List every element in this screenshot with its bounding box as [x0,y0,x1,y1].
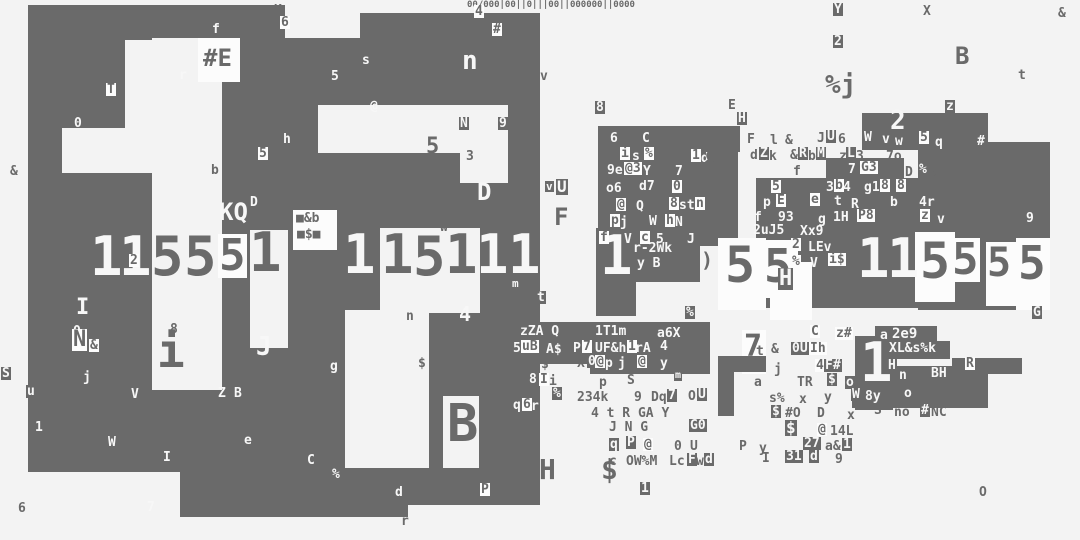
glyph: y [824,391,832,404]
glyph: y B [637,257,660,270]
glyph: $ [418,357,426,370]
glyph: 1H [833,211,849,224]
glyph: o [904,387,912,400]
glyph: U [826,130,836,143]
glyph: r [179,69,187,82]
glyph: H [539,456,556,484]
screen: 00/000|00||0|||00||000000||0000K6f#Er5T0… [0,0,1080,540]
glyph: ■&b [296,212,319,225]
glyph: Y [833,3,843,16]
glyph: 1 [445,228,478,282]
glyph: p [605,357,613,370]
glyph: 0 [672,180,682,193]
glyph: F [747,133,755,146]
glyph: 5 [513,342,521,355]
glyph: 2 [833,35,843,48]
glyph: 5 [656,233,664,246]
glyph: q [609,438,619,451]
glyph: z [920,209,930,222]
glyph: % [685,306,695,319]
glyph: J [687,233,695,246]
glyph: j [82,371,92,384]
glyph: % [791,255,801,268]
glyph: 4 [459,304,471,324]
glyph: z [945,100,955,113]
glyph: r [401,515,409,528]
glyph: % [644,147,654,160]
glyph: Lc [669,455,685,468]
glyph: 8 [896,179,906,192]
glyph: G [1032,306,1042,319]
glyph: & [703,149,721,179]
glyph: C [642,132,650,145]
glyph: B [234,387,242,400]
glyph: 8 [528,373,538,386]
glyph: p [610,214,620,227]
glyph: w [696,455,704,468]
glyph: I [163,451,171,464]
glyph: W [649,215,657,228]
glyph: TR [797,376,813,389]
glyph: 4 [474,5,484,18]
glyph: u [26,385,36,398]
glyph: $ [771,405,781,418]
glyph: 9e [607,164,623,177]
glyph: w [895,135,903,148]
glyph: d7 [639,180,655,193]
glyph: Xx9 [800,225,823,238]
glyph: x [799,393,807,406]
glyph: & [10,165,18,178]
glyph: P [573,342,581,355]
glyph: @3 [624,162,642,175]
glyph: 8 [669,197,679,210]
glyph: Ih [809,342,827,355]
glyph: W [863,131,873,144]
glyph: E [776,194,786,207]
glyph: V [810,257,818,270]
block-rect [718,126,740,152]
glyph: 7 [848,163,856,176]
glyph: x [847,409,855,422]
glyph: XL&s%k [889,342,936,355]
glyph: 6 [18,502,26,515]
glyph: j [774,363,782,376]
glyph: b [211,164,219,177]
glyph: r-2Wk [633,242,672,255]
glyph: 5 [919,131,929,144]
glyph: 6 [280,16,290,29]
glyph: uB [521,340,539,353]
glyph: H [737,112,747,125]
glyph: S [1,367,11,380]
glyph: d [704,453,714,466]
glyph: $ [785,420,797,436]
glyph: E [728,99,736,112]
glyph: N [72,329,87,351]
glyph: 1 [857,232,890,286]
glyph: n [899,369,907,382]
glyph: 3 [466,150,474,163]
glyph: G3 [860,161,878,174]
block-rect [28,5,285,40]
glyph: d [809,450,819,463]
glyph: @ [370,100,378,113]
glyph: 7o [886,150,902,163]
glyph: 4 t R GA Y [591,407,669,420]
glyph: 1 [842,438,852,451]
glyph: 1 [476,228,509,282]
glyph: 5 [258,147,268,160]
block-rect [400,472,540,505]
glyph: k [769,150,777,163]
glyph: v [545,181,554,192]
glyph: zZA Q [520,325,559,338]
block-rect [180,472,408,517]
glyph: & [790,149,798,162]
glyph: a [754,376,762,389]
glyph: 7 [582,340,592,353]
glyph: 1 [35,421,43,434]
glyph: i$ [828,253,846,266]
glyph: m [674,371,682,381]
glyph: 5 [218,234,247,278]
glyph: f [793,165,801,178]
glyph: Z [218,387,226,400]
glyph: 4 [843,181,851,194]
glyph: % [552,387,562,400]
glyph: j [620,216,628,229]
glyph: @ [616,198,626,211]
glyph: J N G [609,421,648,434]
glyph: @ [817,423,827,436]
glyph: i [620,147,630,160]
glyph: 1 [381,228,414,282]
glyph: r [531,400,539,413]
glyph: & [771,343,779,356]
glyph: 3 [826,181,834,194]
glyph: J [817,132,825,145]
glyph: g1 [864,181,880,194]
glyph: v [540,70,548,83]
glyph: ■$■ [297,228,320,241]
glyph: 5 [151,230,184,284]
glyph: 1 [343,228,376,282]
glyph: 1 [887,232,920,286]
glyph: I [762,452,770,465]
glyph: G0 [689,419,707,432]
glyph: % [332,468,340,481]
glyph: 1 [249,226,282,280]
glyph: e [810,193,820,206]
glyph: 8 [595,101,605,114]
glyph: no [894,406,910,419]
glyph: 1 [691,149,701,162]
glyph: @ [643,438,653,451]
block-rect [952,358,1022,374]
glyph: P [626,436,636,449]
glyph: 7 [667,389,677,402]
glyph: 0 [74,117,82,130]
glyph: t [1018,69,1026,82]
glyph: F [554,205,568,229]
glyph: O [688,390,696,403]
glyph: D [250,196,258,209]
glyph: S [874,404,882,417]
glyph: d [750,149,758,162]
glyph: I [76,297,89,319]
glyph: 4 [660,340,668,353]
glyph: %j [825,72,856,98]
glyph: # [977,135,985,148]
glyph: 234k [577,391,608,404]
glyph: 5 [929,166,937,179]
glyph: 5 [426,136,439,158]
glyph: n [406,310,414,323]
glyph: 5 [331,70,339,83]
glyph: b [808,150,816,163]
glyph: 1 [508,228,541,282]
glyph: st [679,199,695,212]
glyph: n [462,48,478,74]
glyph: L [846,147,856,160]
glyph: 0U [791,342,809,355]
block-rect [718,372,734,416]
glyph: 5 [413,230,446,284]
glyph: qm [926,148,942,161]
glyph: $ [541,358,549,371]
glyph: P [480,483,490,496]
glyph: n [695,197,705,210]
glyph: d [395,486,403,499]
glyph: $ [601,456,618,484]
glyph: H [887,359,897,372]
glyph: 1 [90,230,123,284]
glyph: U [697,388,707,401]
glyph: Y [643,165,651,178]
glyph: C [307,454,315,467]
glyph: H [778,268,793,290]
glyph: J [256,334,272,360]
glyph: OW%M [626,455,657,468]
glyph: # [920,404,930,417]
glyph: M [816,147,826,160]
glyph: D [905,166,913,179]
glyph: f [212,23,220,36]
glyph: P8 [857,209,875,222]
glyph: 0 [674,440,682,453]
block-rect [62,128,152,173]
glyph: V [624,233,632,246]
glyph: #E [203,46,232,70]
glyph: 7 [675,165,683,178]
glyph: v [937,213,945,226]
glyph: z# [835,327,853,340]
glyph: 2 [791,238,801,251]
glyph: W [851,388,861,401]
glyph: A$ [546,343,562,356]
glyph: U [556,179,568,195]
glyph: 5 [184,230,217,284]
glyph: & [1058,7,1066,20]
glyph: h [665,214,675,227]
glyph: 5 [725,240,755,290]
glyph: % [918,163,928,176]
glyph: 8 [880,179,890,192]
glyph: X [577,357,585,370]
glyph: T [106,83,116,96]
glyph: $ [827,373,837,386]
glyph: 31 [785,450,803,463]
glyph: KQ [219,200,248,224]
glyph: F# [824,359,842,372]
glyph: I [539,373,549,386]
glyph: N [459,117,469,130]
glyph: f [599,231,609,244]
glyph: c [640,231,650,244]
glyph: 1 [640,482,650,495]
glyph: Z [759,147,769,160]
glyph: 9 [1025,212,1035,225]
glyph: 5 [1018,240,1046,286]
glyph: t [536,291,546,304]
glyph: @ [595,355,605,368]
glyph: V [130,388,140,401]
glyph: s [362,54,370,67]
glyph: N [675,216,683,229]
block-rect [345,310,429,468]
glyph: Dq [651,391,667,404]
glyph: 2e9 [892,327,917,341]
glyph: NC [931,406,947,419]
glyph: D [477,180,491,204]
glyph: 5 [920,236,950,286]
glyph: 8y [865,390,881,403]
glyph: e [243,434,253,447]
block-rect [318,105,463,153]
glyph: O [979,486,987,499]
glyph: 9 [498,117,508,130]
glyph: j [618,357,626,370]
glyph: q [513,399,521,412]
glyph: y [660,357,668,370]
glyph: W [107,436,117,449]
glyph: # [492,23,502,36]
glyph: P [739,440,747,453]
glyph: Q [636,200,644,213]
glyph: 6 [838,133,846,146]
glyph: 1T1m [595,325,626,338]
glyph: o6 [606,182,622,195]
glyph: i [157,328,185,374]
glyph: p [599,376,607,389]
glyph: 7 [147,501,155,514]
glyph: 9 [634,391,642,404]
glyph: 2 [890,108,906,134]
glyph: 6 [610,132,618,145]
glyph: p [763,196,771,209]
glyph: 5 [951,238,980,282]
glyph: g [330,360,338,373]
glyph: R [798,147,808,160]
glyph: v [882,133,890,146]
glyph: B [955,44,969,68]
glyph: R [965,357,975,370]
glyph: 2 [129,254,139,267]
glyph: B [447,398,478,450]
glyph: ) [701,250,713,270]
glyph: 5 [771,180,781,193]
glyph: BH [931,367,947,380]
glyph: 9 [835,453,843,466]
glyph: l [770,134,778,147]
glyph: t [834,195,842,208]
glyph: t [756,345,764,358]
glyph: b [890,196,898,209]
glyph: C [810,325,820,338]
glyph: 5 [987,243,1011,283]
glyph: S [627,374,635,387]
glyph: & [89,339,99,352]
glyph: @ [637,355,647,368]
glyph: & [785,134,793,147]
glyph: h [283,133,291,146]
glyph: 00/000|00||0|||00||000000||0000 [467,1,635,10]
glyph: D [817,407,825,420]
glyph: X [923,5,931,18]
glyph: 2uJ5 [753,224,784,237]
